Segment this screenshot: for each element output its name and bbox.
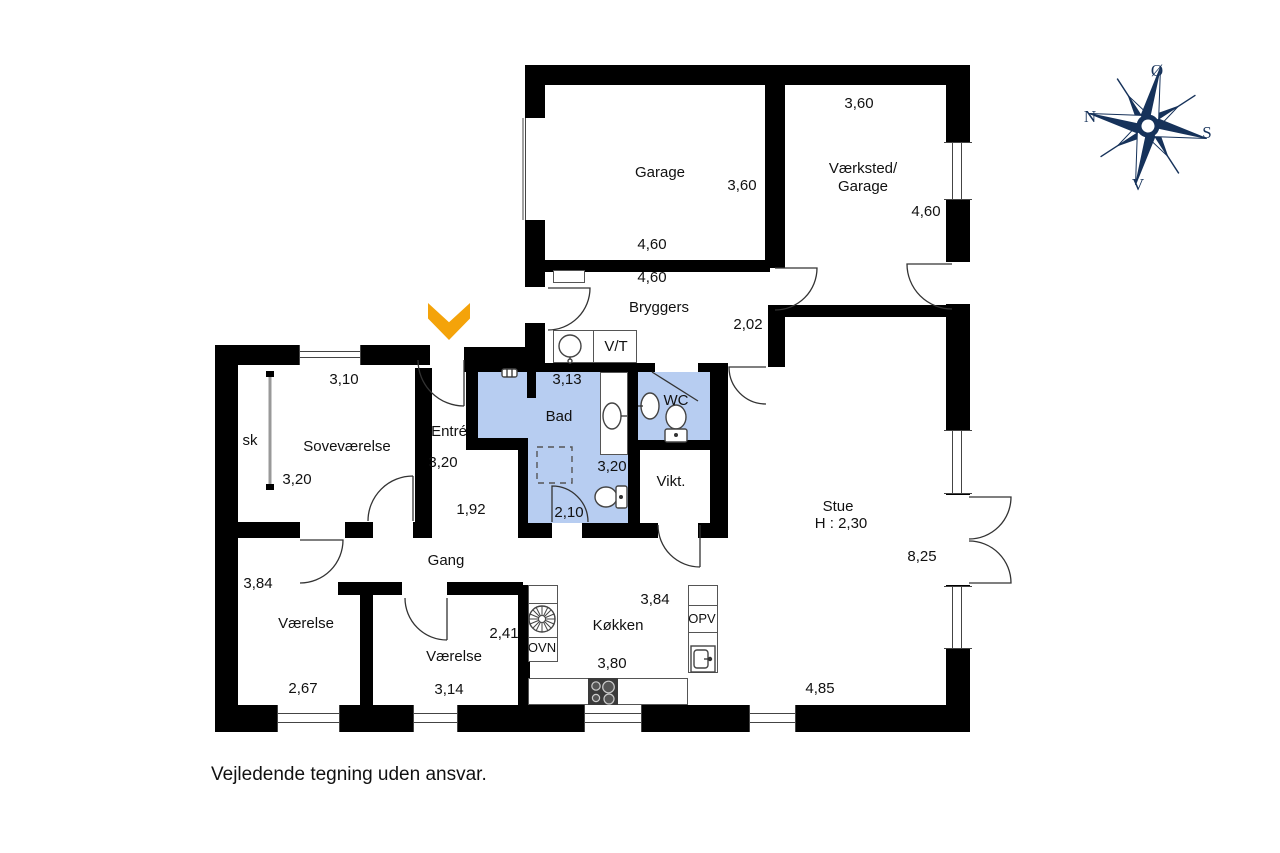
- dim-vaerksted-top: 3,60: [844, 95, 873, 113]
- vaerksted-line2: Garage: [838, 178, 888, 195]
- dim-entre-passage: 1,92: [456, 501, 485, 519]
- room-label-wc: WC: [664, 392, 689, 410]
- compass-east-label: Ø: [1151, 61, 1163, 80]
- floor-plan: Ø N S V Garage 3,60 4,60 3,60 Værksted/ …: [0, 0, 1280, 853]
- dim-garage-width: 3,60: [727, 177, 756, 195]
- room-label-bad: Bad: [546, 408, 573, 426]
- wc-sink-icon: [638, 393, 659, 419]
- dim-vaerelse1-bottom: 2,67: [288, 680, 317, 698]
- vt-label: V/T: [604, 338, 627, 356]
- dim-bad-top: 3,13: [552, 371, 581, 389]
- bad-toilet-icon: [595, 486, 627, 508]
- room-label-vaerelse1: Værelse: [278, 615, 334, 633]
- dim-stue-bottom: 4,85: [805, 680, 834, 698]
- door-arcs: [300, 264, 1011, 640]
- extractor-fan-icon: [529, 606, 555, 632]
- room-label-vaerelse2: Værelse: [426, 648, 482, 666]
- cooktop-icon: [588, 678, 618, 705]
- oven-label: OVN: [528, 639, 556, 657]
- kitchen-sink-icon: [691, 646, 715, 672]
- dim-bad-bottom: 2,10: [554, 504, 583, 522]
- compass-west-label: V: [1132, 175, 1145, 194]
- room-label-garage: Garage: [635, 164, 685, 182]
- shower-icon: [537, 447, 572, 483]
- dim-garage-depth: 4,60: [637, 236, 666, 254]
- stue-ceiling-height: H : 2,30: [815, 515, 868, 533]
- dim-bad-right: 3,20: [597, 458, 626, 476]
- dim-vaerelse2-right: 2,41: [489, 625, 518, 643]
- wc-toilet-icon: [665, 405, 687, 442]
- closet-sliding-door: [266, 371, 274, 490]
- disclaimer-text: Vejledende tegning uden ansvar.: [211, 764, 487, 786]
- dim-vaerksted-right: 4,60: [911, 203, 940, 221]
- compass-rose-icon: Ø N S V: [1077, 55, 1219, 197]
- radiator-icon: [502, 369, 517, 377]
- dim-koekken-top: 3,84: [640, 591, 669, 609]
- plan-symbols: Ø N S V: [0, 0, 1280, 853]
- dim-bryggers-passage: 2,02: [733, 316, 762, 334]
- room-label-sovevaerelse: Soveværelse: [303, 438, 391, 456]
- room-label-gang: Gang: [428, 552, 465, 570]
- dim-stue-right: 8,25: [907, 548, 936, 566]
- room-label-stue: Stue: [823, 498, 854, 516]
- closet-label: sk: [243, 432, 258, 450]
- dim-bryggers-top: 4,60: [637, 269, 666, 287]
- compass-south-label: S: [1202, 123, 1211, 142]
- compass-north-label: N: [1084, 107, 1096, 126]
- room-label-koekken: Køkken: [593, 617, 644, 635]
- room-label-vikt: Vikt.: [657, 473, 686, 491]
- room-label-entre: Entré: [431, 423, 467, 441]
- room-label-vaerksted: Værksted/ Garage: [829, 160, 897, 196]
- room-label-bryggers: Bryggers: [629, 299, 689, 317]
- dim-entre: 3,20: [428, 454, 457, 472]
- dim-vaerelse1-left: 3,84: [243, 575, 272, 593]
- dishwasher-label: OPV: [688, 610, 715, 628]
- washing-machine-icon: [559, 335, 581, 363]
- vaerksted-line1: Værksted/: [829, 160, 897, 177]
- dim-sovevaerelse: 3,20: [282, 471, 311, 489]
- bad-sink-icon: [603, 403, 627, 429]
- dim-koekken-bottom: 3,80: [597, 655, 626, 673]
- dim-vaerelse2-bottom: 3,14: [434, 681, 463, 699]
- dim-sovevaerelse-top: 3,10: [329, 371, 358, 389]
